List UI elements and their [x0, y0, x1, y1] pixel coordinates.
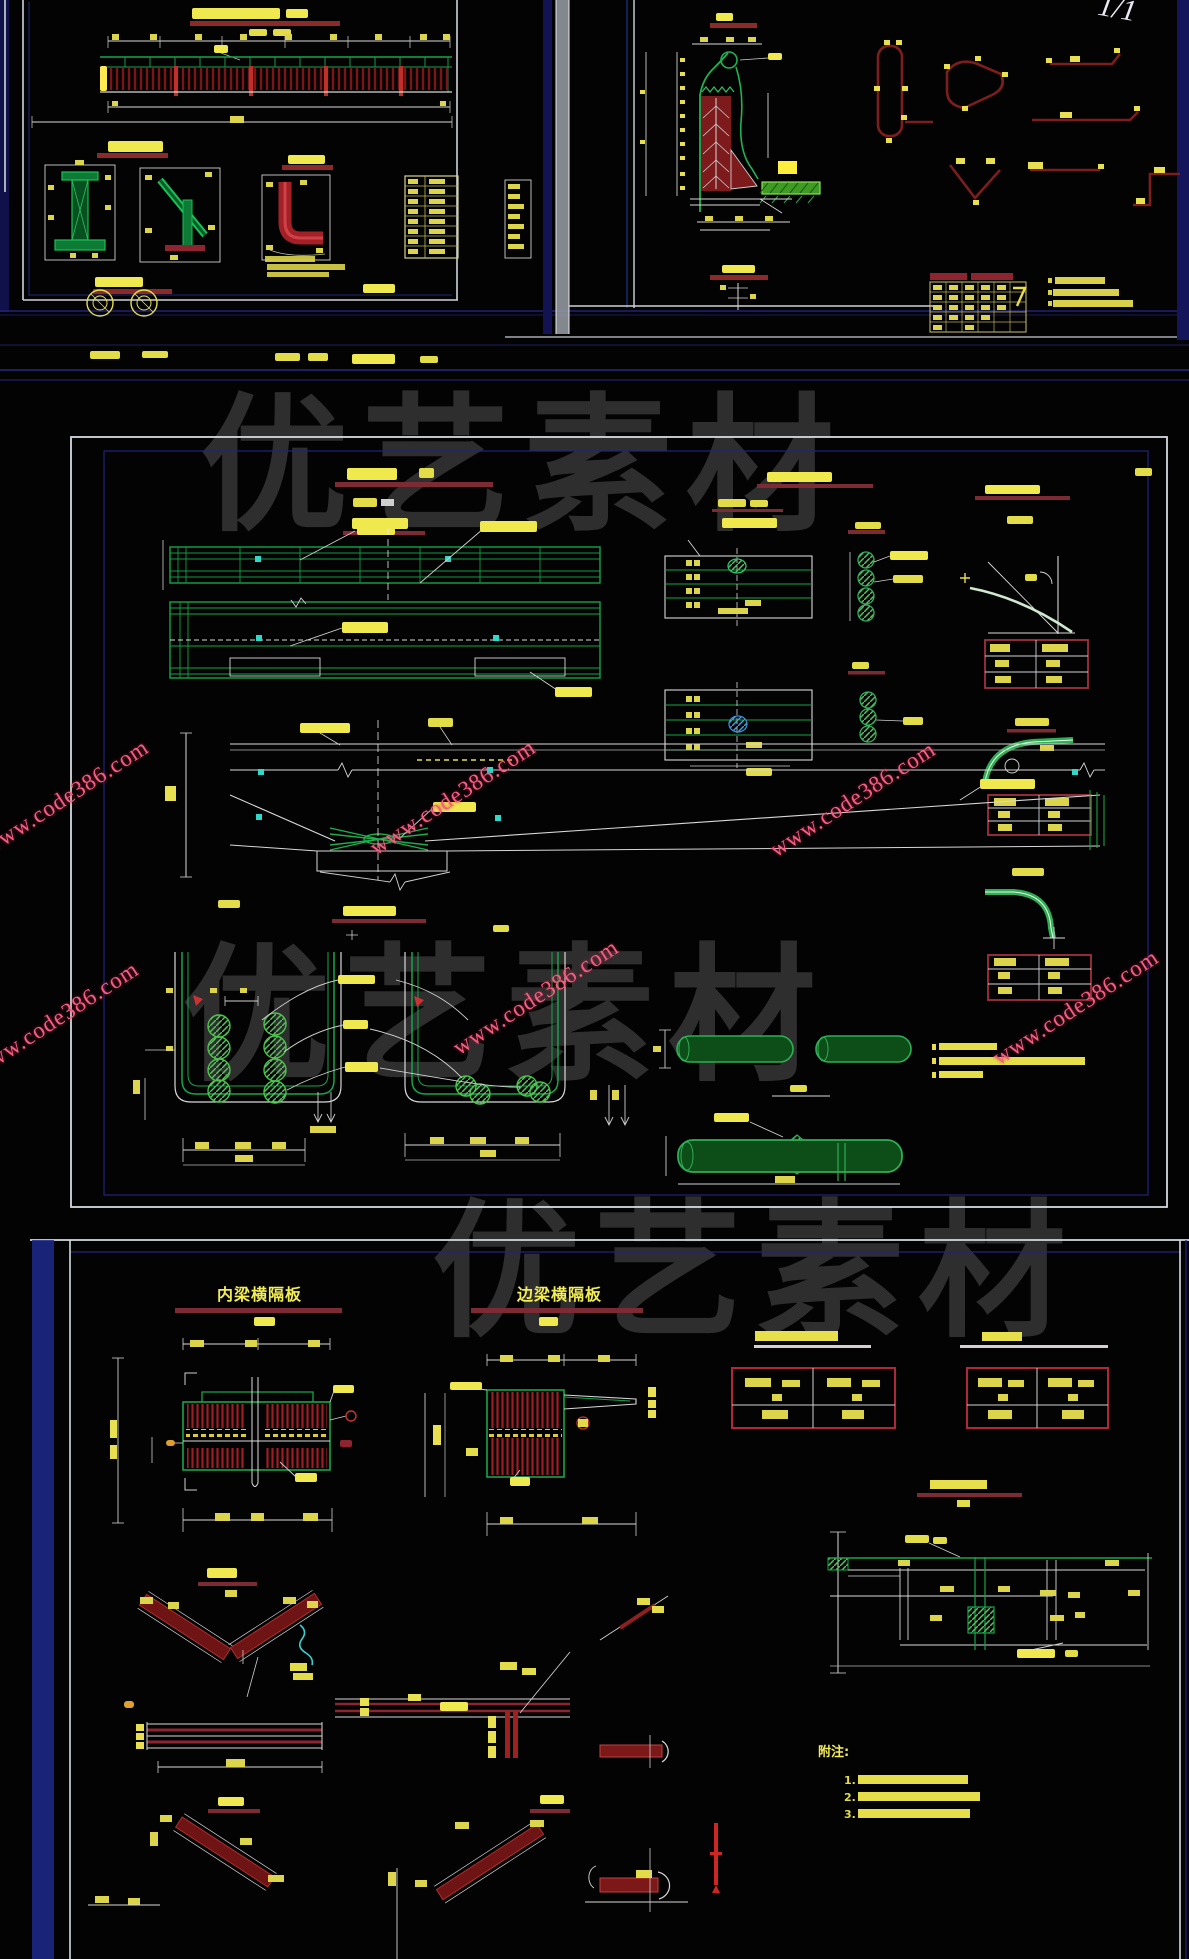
rebar-shape-details	[874, 40, 1180, 205]
arc-detail	[960, 468, 1152, 634]
param-headings	[754, 1331, 1108, 1348]
edge-diaphragm-view	[425, 1354, 656, 1536]
inner-diaphragm-title: 内梁横隔板	[217, 1287, 302, 1303]
u-section-right	[405, 952, 629, 1160]
rebar-schedule-table	[930, 273, 1026, 332]
data-table-2	[988, 795, 1091, 835]
bent-bar-detail-2	[88, 1795, 722, 1959]
cad-screenshot-canvas: 优艺素材 优艺素材 优艺素材	[0, 0, 1189, 1959]
left-table-fragment	[505, 180, 531, 258]
girder-plan-2	[170, 598, 600, 697]
bottom-title-underlines	[175, 1308, 643, 1326]
edge-diaphragm-title: 边梁横隔板	[517, 1287, 602, 1303]
inner-diaphragm-view	[110, 1338, 356, 1532]
deck-cross-section	[828, 1480, 1152, 1673]
curved-pipe-section	[262, 175, 330, 260]
note-number-2: 2.	[844, 1792, 856, 1803]
plan-view-titles	[335, 468, 493, 535]
note-number-3: 3.	[844, 1809, 856, 1820]
param-table-2	[967, 1368, 1108, 1428]
param-table-1	[732, 1368, 895, 1428]
data-table-1	[985, 640, 1088, 688]
materials-table-topleft	[405, 176, 458, 258]
laminate-strip-1	[124, 1701, 322, 1773]
u-section-leaders	[262, 975, 520, 1133]
sheet-topleft-frame	[23, 0, 458, 300]
girder-plan-1	[163, 521, 600, 600]
laminate-strip-2	[335, 1596, 668, 1768]
notes-bars-bottom	[858, 1775, 980, 1818]
bent-bar-detail-1	[138, 1568, 324, 1697]
detail-box-1	[665, 540, 812, 626]
parapet-title	[710, 13, 757, 28]
pre-panel-labels	[90, 351, 438, 364]
pipe-elbow-detail-2	[985, 868, 1065, 949]
sheet-topleft-title	[190, 8, 340, 36]
diagonal-member-section	[140, 168, 220, 262]
parapet-sub-detail	[705, 265, 768, 310]
tendon-circle-stack-1	[848, 522, 928, 621]
cad-line-art	[0, 0, 1189, 1959]
tendon-circle-stack-2	[848, 662, 923, 742]
ibeam-section	[45, 160, 115, 260]
note-number-1: 1.	[844, 1775, 856, 1786]
detail-box-column-titles	[712, 472, 873, 528]
u-section-left	[133, 952, 341, 1165]
tendon-elevation	[165, 718, 1105, 890]
parapet-section	[640, 37, 820, 230]
u-section-titles	[218, 900, 509, 940]
notes-topleft	[265, 256, 345, 277]
section-detail-titles	[97, 141, 395, 293]
anchor-detail	[87, 277, 172, 316]
girder-elevation	[32, 34, 452, 128]
notes-heading: 附注:	[818, 1746, 849, 1759]
notes-topright	[1048, 277, 1133, 307]
detail-box-2	[665, 682, 812, 776]
